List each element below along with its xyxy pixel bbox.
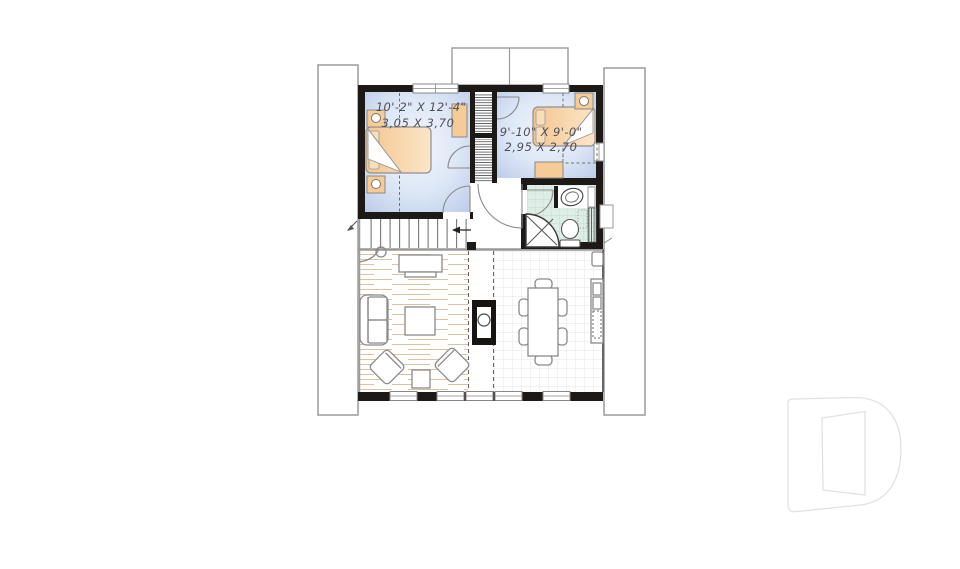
window-icon	[594, 143, 604, 161]
floor-plan-sheet: 10'-2" X 12'-4" 3,05 X 3,70 9'-10" X 9'-…	[0, 0, 960, 569]
sink-partition	[554, 186, 558, 208]
closet-divider-wall	[470, 133, 497, 138]
bedroom-2-dim-imperial: 9'-10" X 9'-0"	[500, 125, 583, 139]
window-icon	[543, 392, 570, 401]
toilet-icon	[560, 220, 580, 248]
roof-outline-left	[318, 65, 358, 415]
bedroom-1-dim-imperial: 10'-2" X 12'-4"	[376, 100, 466, 114]
tv-cabinet-icon	[399, 255, 442, 277]
closet-hatch-bottom	[475, 139, 492, 182]
bath-shelf	[588, 187, 595, 207]
bedroom-2-south-wall	[521, 178, 603, 185]
floor-plan-drawing: 10'-2" X 12'-4" 3,05 X 3,70 9'-10" X 9'-…	[0, 0, 960, 569]
west-wall	[358, 85, 365, 217]
window-icon	[543, 84, 569, 93]
dresser-icon	[535, 162, 563, 178]
bedroom-1-south-wall	[358, 212, 443, 219]
kitchen-counter-icon	[591, 252, 603, 343]
dining-table-icon	[528, 288, 558, 356]
bedroom-1-dim-metric: 3,05 X 3,70	[381, 116, 454, 130]
linen-closet-hatch	[588, 208, 596, 242]
sofa-icon	[360, 295, 388, 345]
window-icon	[390, 392, 417, 401]
window-icon	[466, 392, 493, 401]
window-icon	[413, 84, 458, 93]
stair-post	[467, 242, 476, 250]
closet-hatch-top	[475, 93, 492, 132]
nightstand-icon	[367, 176, 385, 193]
window-icon	[600, 205, 613, 228]
wood-stove-icon	[472, 300, 496, 345]
dormer	[452, 48, 568, 85]
side-table-icon	[412, 370, 430, 388]
bedroom-2-dim-metric: 2,95 X 2,70	[504, 140, 577, 154]
coffee-table-icon	[405, 307, 435, 335]
window-icon	[495, 392, 522, 401]
nightstand-icon	[575, 93, 593, 109]
window-icon	[437, 392, 464, 401]
roof-outline-right	[604, 68, 645, 415]
bed-icon-bedroom-1	[366, 127, 431, 173]
